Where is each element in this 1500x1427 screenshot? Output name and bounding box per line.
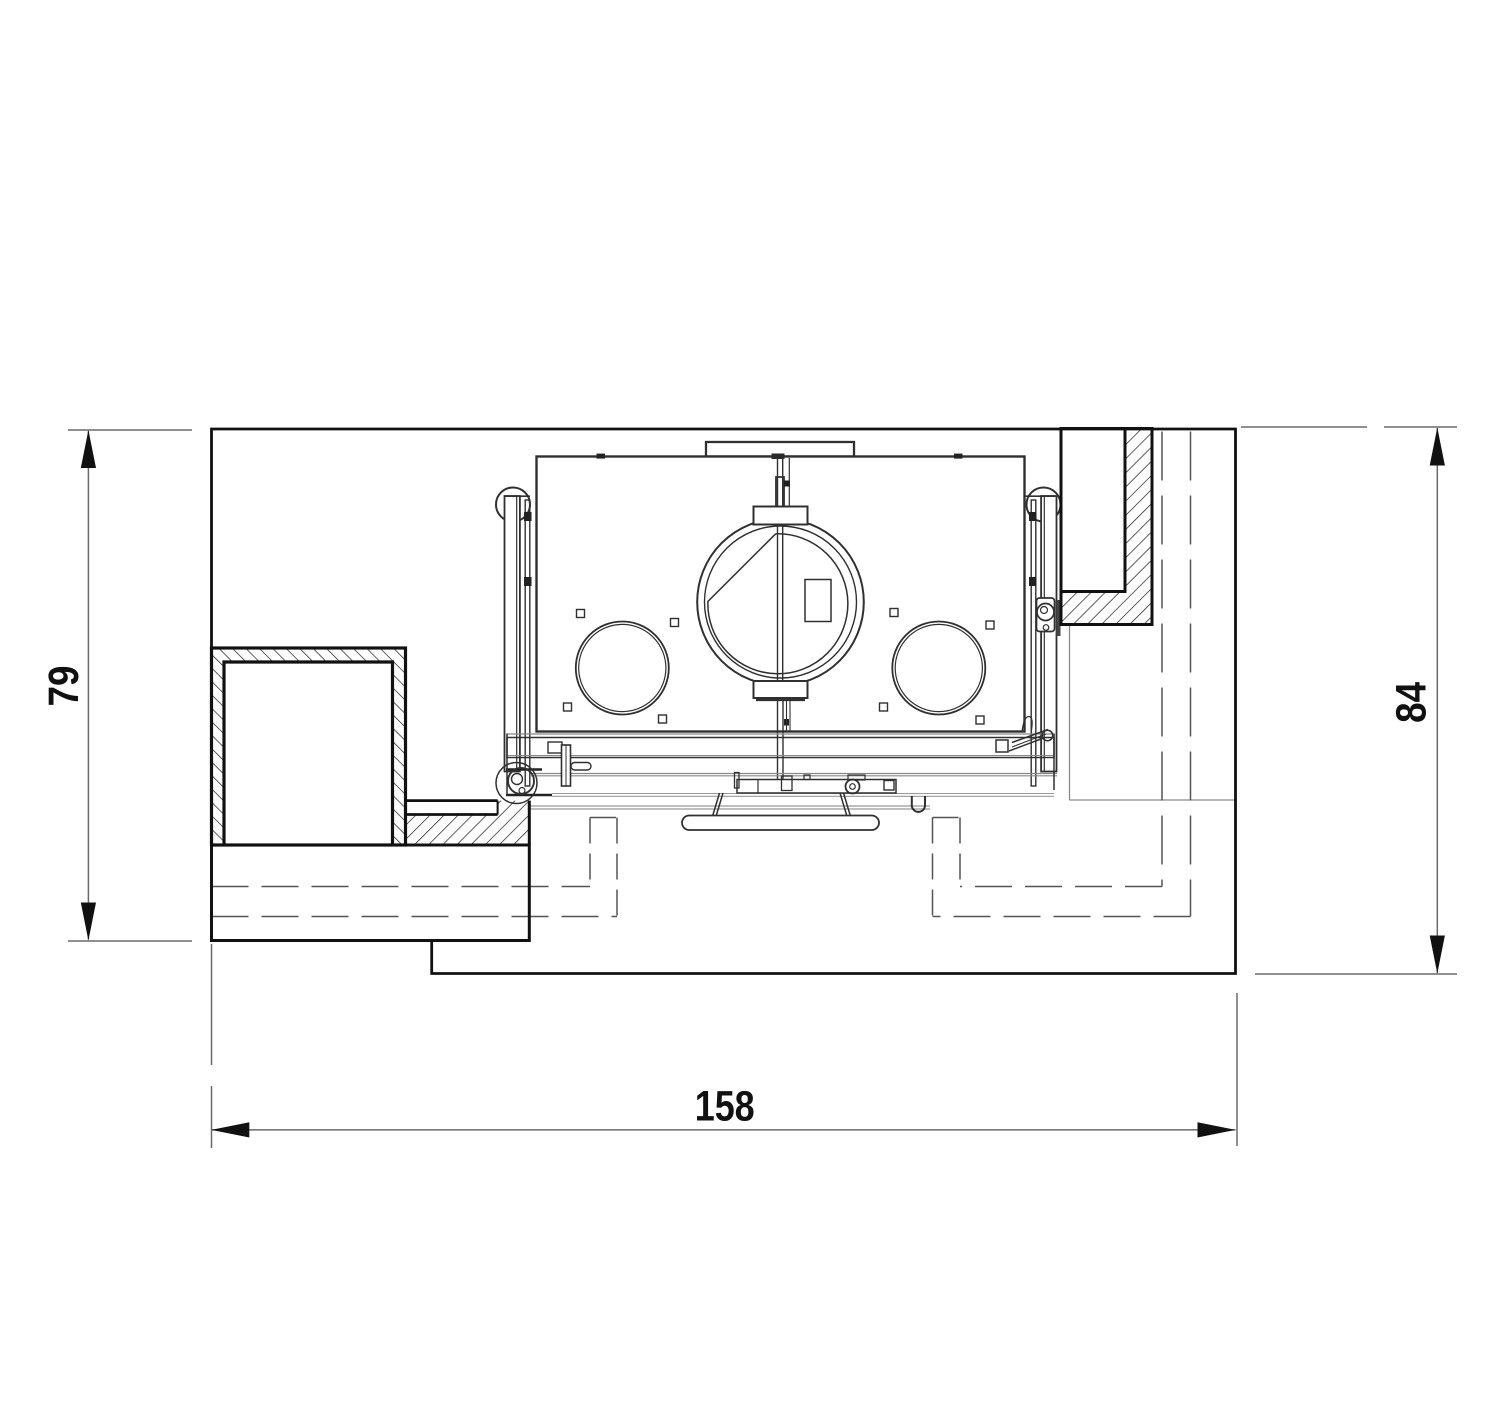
- svg-text:79: 79: [40, 666, 88, 707]
- svg-text:84: 84: [1388, 682, 1436, 723]
- svg-text:158: 158: [695, 1082, 755, 1130]
